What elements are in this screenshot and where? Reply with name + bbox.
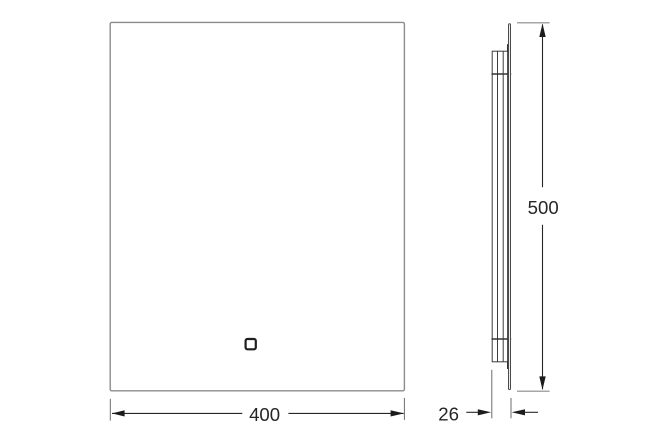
- svg-text:26: 26: [438, 404, 459, 425]
- svg-text:400: 400: [249, 404, 280, 425]
- svg-text:500: 500: [528, 197, 559, 218]
